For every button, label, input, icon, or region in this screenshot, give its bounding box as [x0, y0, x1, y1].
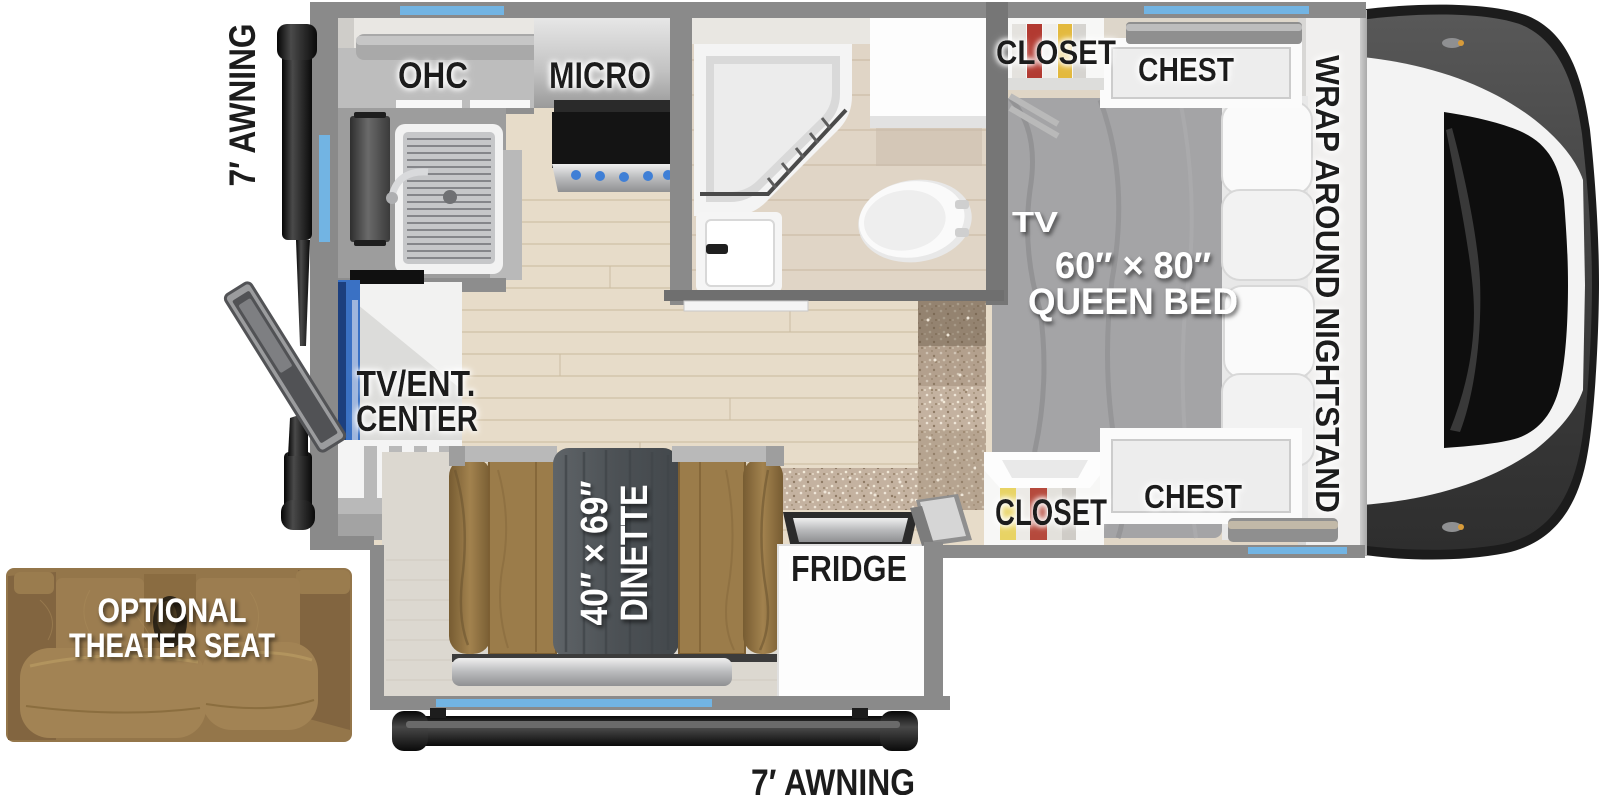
svg-text:CLOSET: CLOSET — [995, 492, 1107, 533]
svg-text:CLOSET: CLOSET — [996, 34, 1116, 72]
svg-text:CENTER: CENTER — [356, 398, 478, 439]
svg-text:THEATER SEAT: THEATER SEAT — [69, 627, 275, 665]
svg-text:40″ × 69″: 40″ × 69″ — [574, 481, 616, 626]
svg-text:7′ AWNING: 7′ AWNING — [751, 762, 915, 795]
svg-text:FRIDGE: FRIDGE — [791, 548, 907, 589]
svg-text:CHEST: CHEST — [1138, 51, 1234, 88]
svg-text:WRAP AROUND NIGHTSTAND: WRAP AROUND NIGHTSTAND — [1309, 55, 1346, 513]
svg-text:CHEST: CHEST — [1144, 478, 1242, 515]
svg-text:QUEEN BED: QUEEN BED — [1028, 281, 1238, 322]
svg-text:OHC: OHC — [398, 55, 468, 96]
svg-text:OPTIONAL: OPTIONAL — [98, 592, 247, 630]
svg-text:MICRO: MICRO — [549, 55, 651, 96]
svg-text:60″ × 80″: 60″ × 80″ — [1055, 245, 1211, 286]
svg-text:DINETTE: DINETTE — [614, 485, 656, 622]
svg-text:7′ AWNING: 7′ AWNING — [222, 24, 263, 187]
svg-text:TV: TV — [1012, 207, 1059, 239]
